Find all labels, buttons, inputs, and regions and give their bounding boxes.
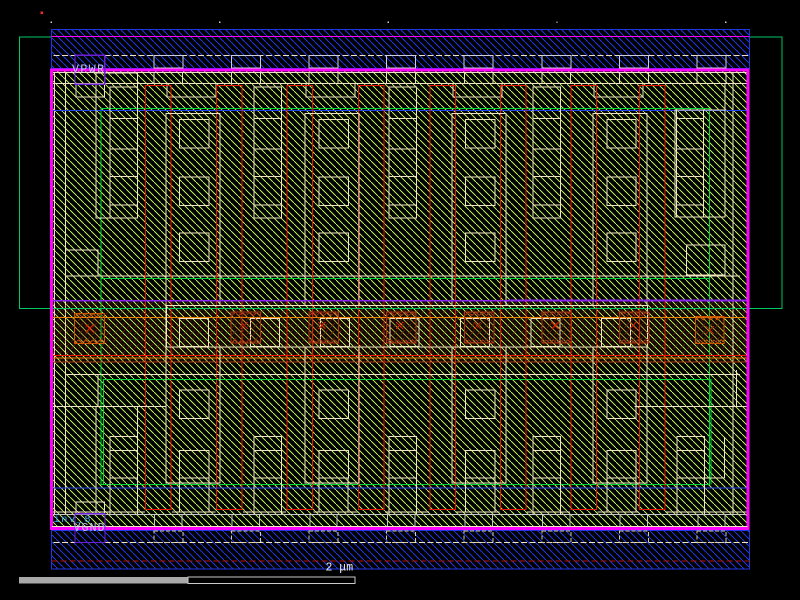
svg-text:VPWR: VPWR [72, 64, 104, 77]
svg-text:inv_8: inv_8 [54, 514, 91, 526]
svg-text:2 μm: 2 μm [326, 561, 354, 574]
